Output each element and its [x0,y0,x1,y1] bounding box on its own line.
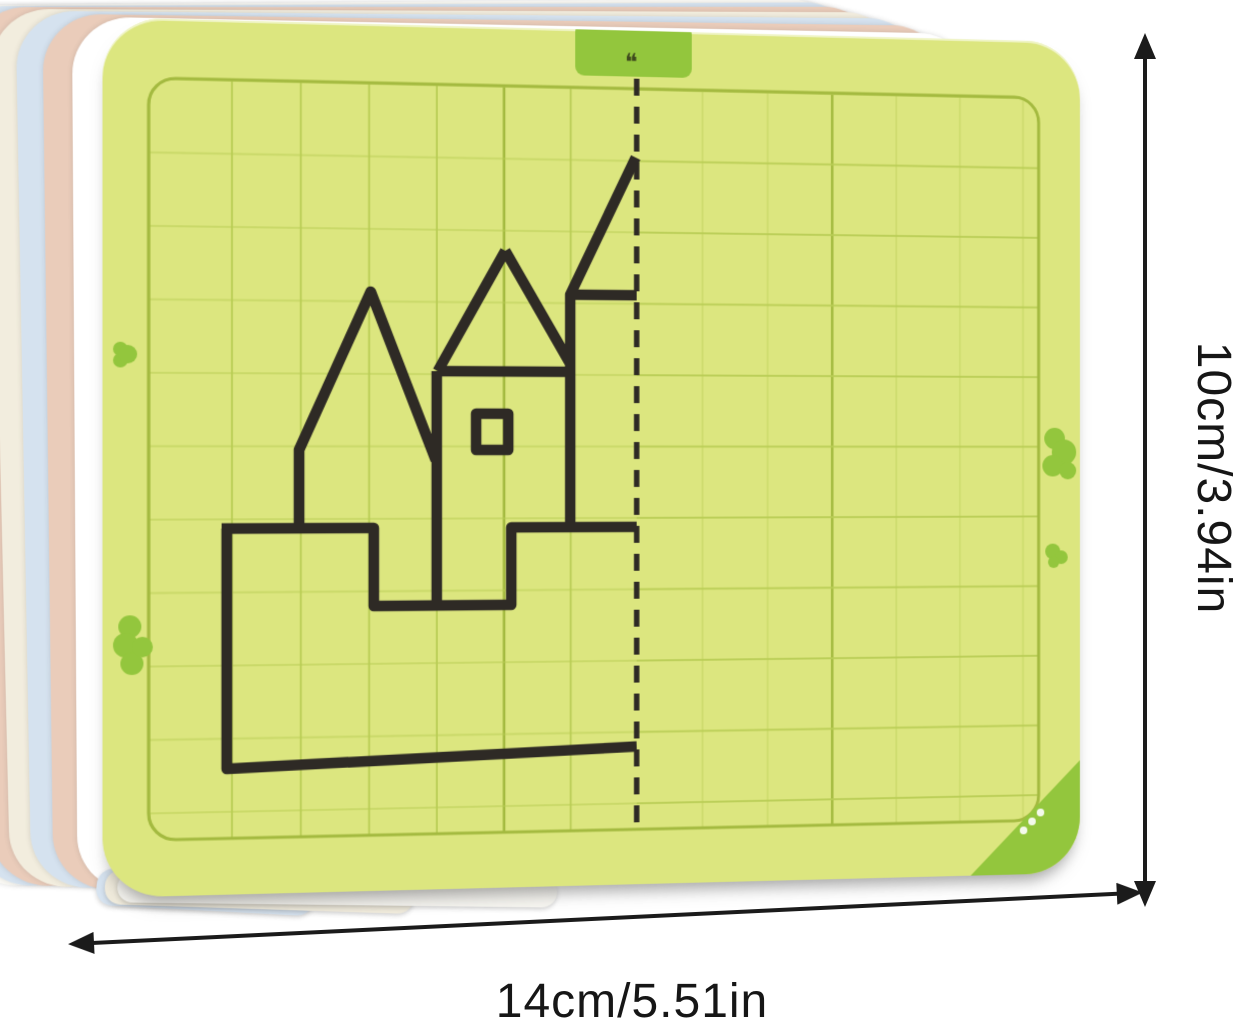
product-dimension-diagram: ❝ [0,0,1250,1031]
arrow-right-icon [1116,882,1143,905]
height-arrow [1143,57,1147,883]
arrow-up-icon [1134,33,1156,59]
height-dimension-label: 10cm/3.94in [1183,328,1243,628]
width-dimension-label: 14cm/5.51in [432,974,832,1029]
clip-blob-right-small [1045,544,1068,568]
clip-blob-right-large [1042,428,1076,480]
arrow-left-icon [67,932,94,955]
card-stack: ❝ [113,30,1098,885]
